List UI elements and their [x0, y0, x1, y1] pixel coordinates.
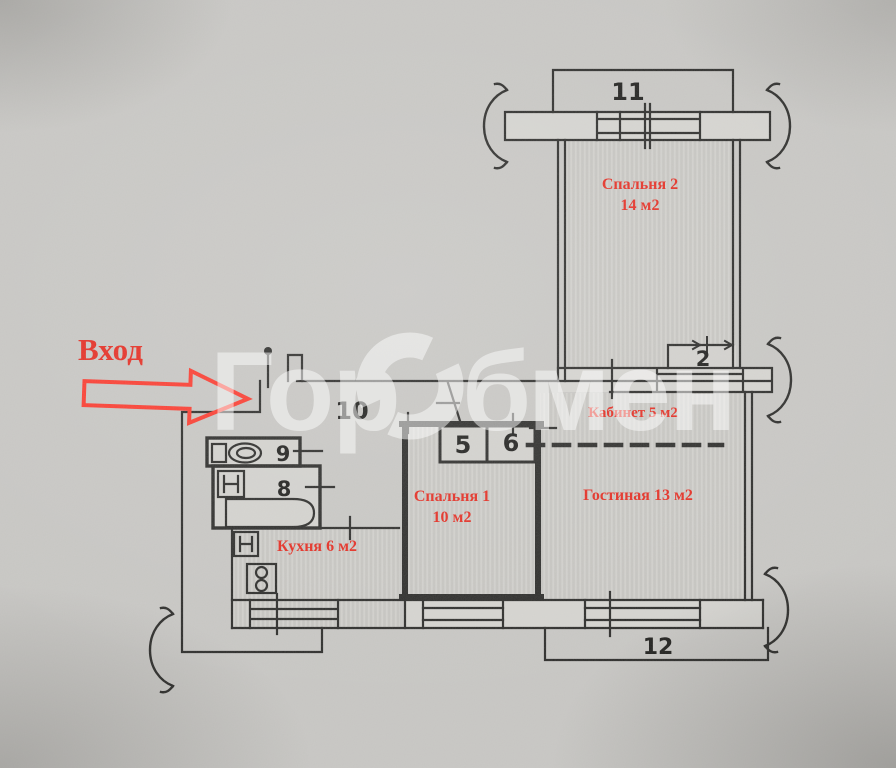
floorplan-drawing: 11 2 10 9 8 5 6 12 Спальня 2 14 м2 Кабин… — [0, 0, 896, 768]
floorplan-scan: 11 2 10 9 8 5 6 12 Спальня 2 14 м2 Кабин… — [0, 0, 896, 768]
paper-grain — [0, 0, 896, 768]
